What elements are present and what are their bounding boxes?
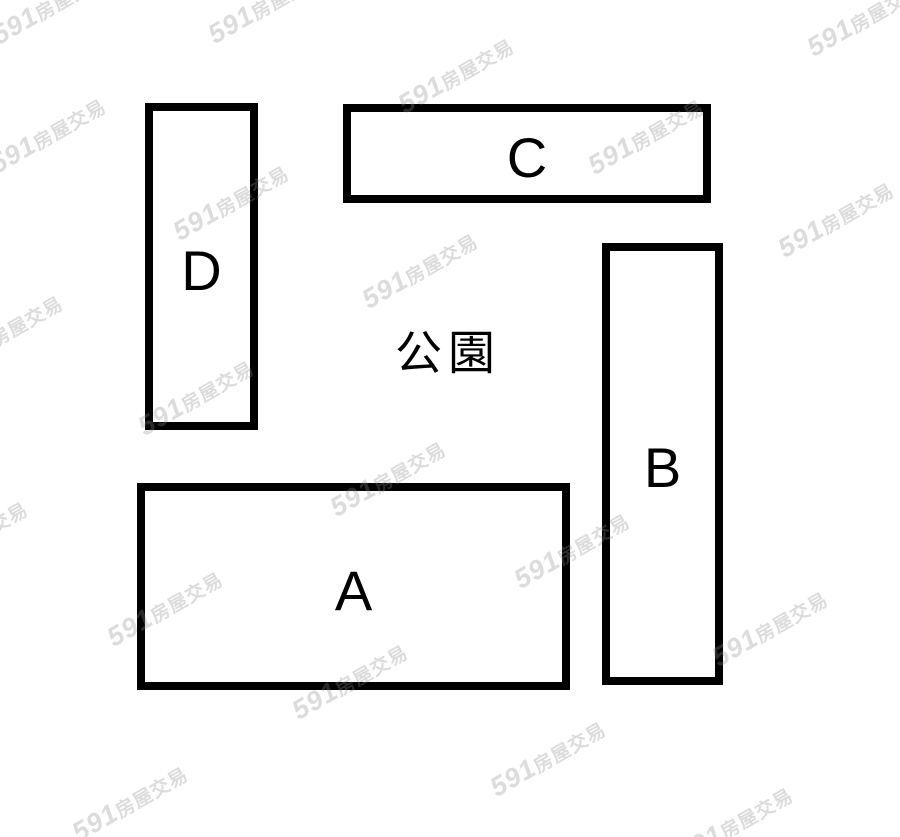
watermark-suffix-text: 房屋交易 (0, 293, 67, 351)
watermark-brand-text: 591 (357, 265, 414, 315)
watermark-591: 591房屋交易 (0, 0, 113, 51)
block-label-b: B (644, 440, 681, 496)
watermark-suffix-text: 房屋交易 (847, 0, 900, 38)
watermark-suffix-text: 房屋交易 (717, 785, 797, 837)
watermark-591: 591房屋交易 (707, 583, 833, 674)
watermark-brand-text: 591 (0, 1, 43, 51)
watermark-591: 591房屋交易 (485, 713, 611, 804)
watermark-brand-text: 591 (773, 214, 830, 264)
watermark-brand-text: 591 (672, 819, 729, 837)
watermark-brand-text: 591 (203, 0, 260, 50)
watermark-suffix-text: 房屋交易 (32, 0, 112, 26)
watermark-591: 591房屋交易 (0, 287, 68, 378)
watermark-591: 591房屋交易 (802, 0, 900, 63)
watermark-suffix-text: 房屋交易 (248, 0, 328, 25)
watermark-suffix-text: 房屋交易 (402, 231, 482, 289)
watermark-brand-text: 591 (67, 798, 124, 837)
watermark-suffix-text: 房屋交易 (752, 589, 832, 647)
watermark-suffix-text: 房屋交易 (530, 719, 610, 777)
watermark-suffix-text: 房屋交易 (818, 180, 898, 238)
block-label-c: C (507, 130, 547, 186)
park-label: 公園 (395, 315, 501, 384)
block-d: D (145, 103, 258, 430)
watermark-591: 591房屋交易 (357, 225, 483, 316)
watermark-591: 591房屋交易 (0, 493, 33, 584)
watermark-591: 591房屋交易 (773, 174, 899, 265)
block-c: C (343, 104, 711, 203)
block-b: B (602, 243, 723, 685)
floorplan-canvas: 公園 ABCD591房屋交易591房屋交易591房屋交易591房屋交易591房屋… (0, 0, 900, 837)
watermark-suffix-text: 房屋交易 (30, 96, 110, 154)
watermark-brand-text: 591 (0, 130, 41, 180)
watermark-brand-text: 591 (485, 753, 542, 803)
watermark-brand-text: 591 (802, 13, 859, 63)
watermark-suffix-text: 房屋交易 (438, 36, 518, 94)
watermark-suffix-text: 房屋交易 (0, 499, 32, 557)
watermark-suffix-text: 房屋交易 (112, 764, 192, 822)
watermark-591: 591房屋交易 (672, 779, 798, 837)
watermark-591: 591房屋交易 (203, 0, 329, 50)
block-label-d: D (181, 243, 221, 299)
block-a: A (137, 483, 570, 690)
block-label-a: A (335, 563, 372, 619)
watermark-591: 591房屋交易 (0, 90, 111, 181)
watermark-591: 591房屋交易 (67, 758, 193, 837)
